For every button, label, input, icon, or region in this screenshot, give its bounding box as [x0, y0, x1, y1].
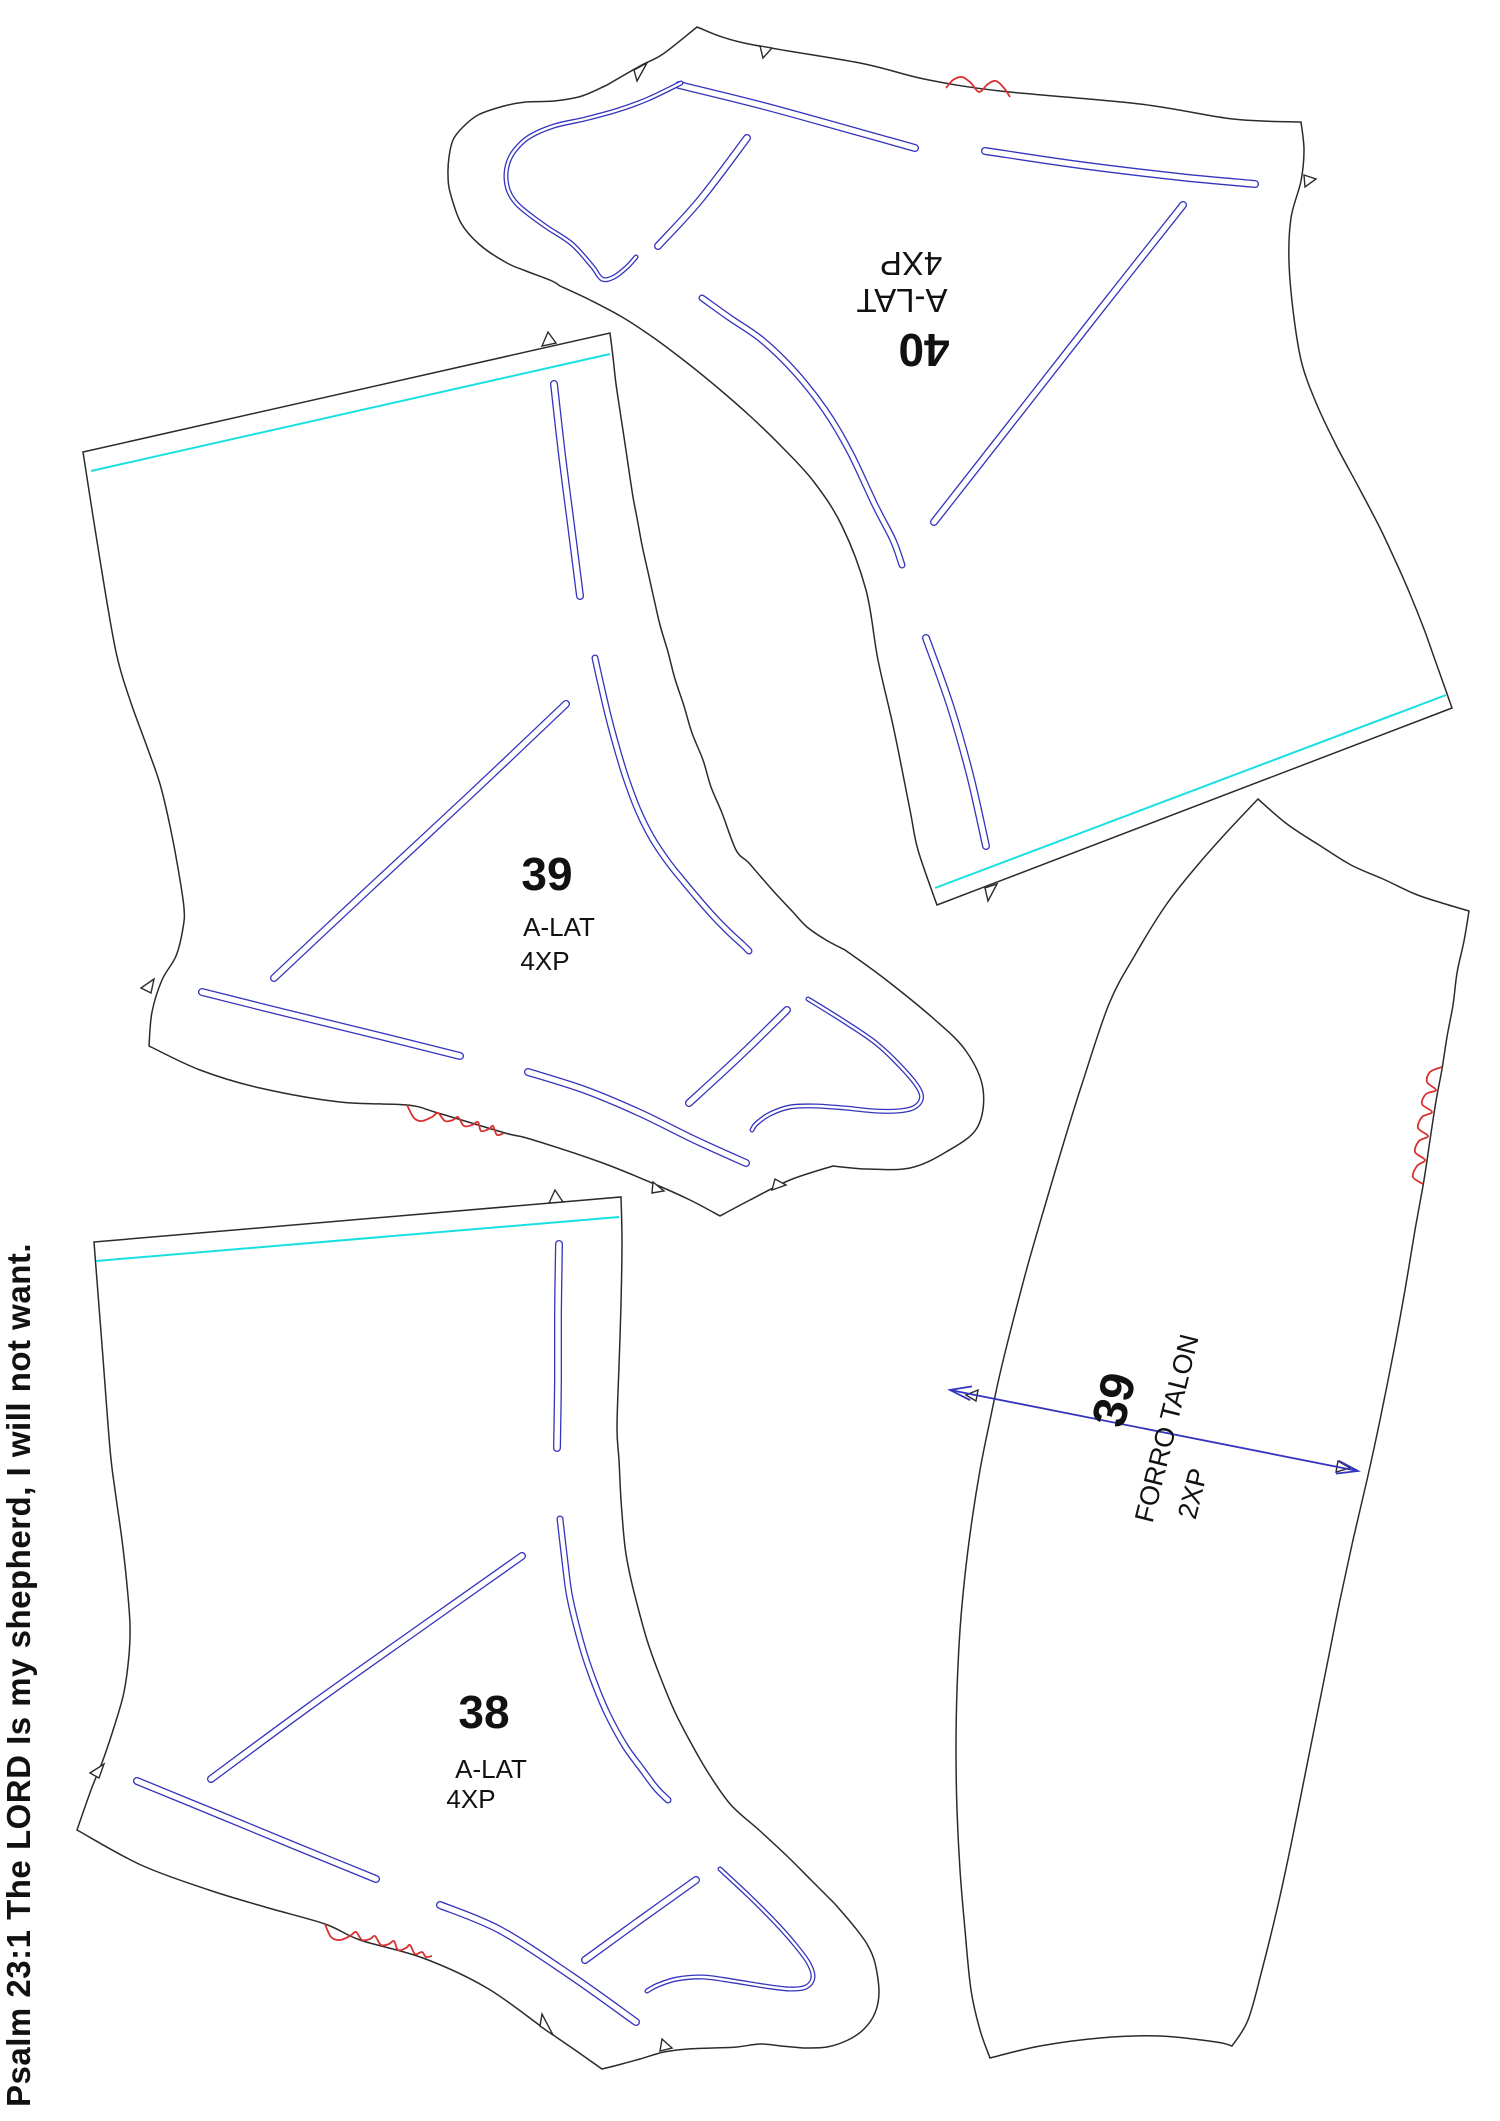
- svg-text:Psalm 23:1 The LORD Is my shep: Psalm 23:1 The LORD Is my shepherd, I wi…: [0, 1243, 37, 2107]
- svg-text:4XP: 4XP: [880, 245, 942, 282]
- svg-text:38: 38: [458, 1686, 509, 1738]
- svg-text:4XP: 4XP: [446, 1784, 495, 1814]
- svg-text:39: 39: [521, 848, 572, 900]
- svg-text:A-LAT: A-LAT: [523, 912, 595, 942]
- svg-text:40: 40: [898, 324, 949, 376]
- svg-text:A-LAT: A-LAT: [455, 1754, 527, 1784]
- svg-text:4XP: 4XP: [520, 946, 569, 976]
- svg-text:A-LAT: A-LAT: [856, 282, 947, 319]
